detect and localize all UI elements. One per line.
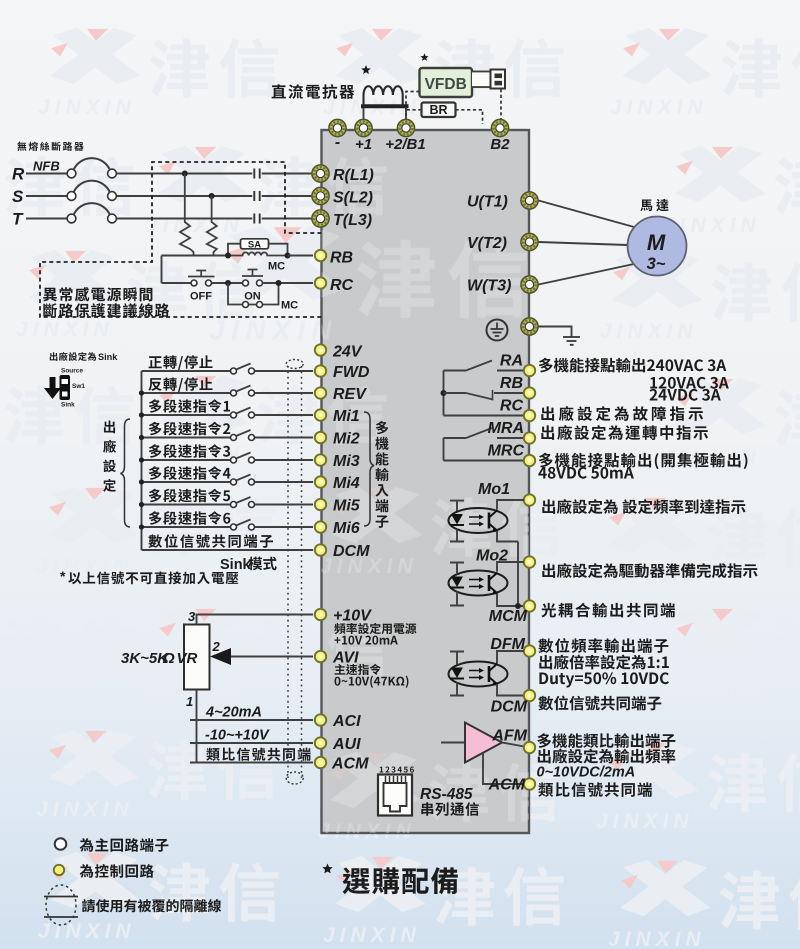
svg-text:T: T [12,210,24,229]
svg-text:R(L1): R(L1) [333,167,374,184]
svg-text:1: 1 [186,694,193,709]
svg-text:Mi3: Mi3 [333,453,360,470]
svg-text:+1: +1 [355,136,372,153]
svg-text:M: M [647,230,666,255]
svg-text:OFF: OFF [190,291,212,303]
svg-text:ACI: ACI [332,713,361,730]
svg-text:+2/B1: +2/B1 [385,136,425,153]
svg-text:REV: REV [333,386,367,403]
svg-text:3~: 3~ [647,255,666,273]
svg-text:MC: MC [281,300,298,312]
svg-text:Mi4: Mi4 [333,475,360,492]
svg-text:Mi5: Mi5 [333,498,361,515]
svg-text:S(L2): S(L2) [333,190,373,207]
svg-text:Sink: Sink [61,402,75,409]
svg-text:Sw1: Sw1 [72,383,85,390]
svg-text:V(T2): V(T2) [467,235,507,252]
svg-text:0~10VDC/2mA: 0~10VDC/2mA [537,765,636,781]
svg-text:AVI: AVI [332,650,359,667]
svg-text:DCM: DCM [491,699,528,716]
svg-text:-10~+10V: -10~+10V [205,728,270,744]
svg-text:Sink: Sink [220,557,252,573]
svg-text:Mo1: Mo1 [478,481,510,498]
svg-text:RA: RA [500,353,523,370]
svg-text:AFM: AFM [491,728,527,745]
svg-text:U(T1): U(T1) [467,194,508,211]
svg-text:RC: RC [500,398,524,415]
svg-text:Mi1: Mi1 [333,408,360,425]
svg-text:Mi2: Mi2 [333,431,360,448]
svg-text:T(L3): T(L3) [333,212,372,229]
svg-text:S: S [12,187,24,206]
svg-text:RS-485: RS-485 [420,786,473,803]
svg-text:Ω: Ω [162,650,175,667]
svg-text:ACM: ACM [331,756,369,773]
svg-text:Mi6: Mi6 [333,520,360,537]
svg-text:SA: SA [248,239,261,250]
svg-text:3: 3 [188,609,196,624]
svg-text:DCM: DCM [333,543,370,560]
svg-text:B2: B2 [490,136,510,153]
svg-text:RB: RB [330,250,353,267]
svg-text:RB: RB [500,375,523,392]
svg-text:MRA: MRA [488,420,524,437]
svg-text:-: - [335,134,340,151]
svg-text:MCM: MCM [489,608,528,625]
svg-text:4~20mA: 4~20mA [205,705,262,721]
svg-text:MRC: MRC [488,443,525,460]
svg-text:VR: VR [177,650,198,667]
svg-text:+10V: +10V [333,608,372,625]
svg-text:24V: 24V [332,344,363,361]
svg-text:W(T3): W(T3) [467,278,511,295]
svg-text:MC: MC [268,261,285,273]
svg-text:RC: RC [330,277,354,294]
svg-text:2: 2 [212,639,221,654]
svg-text:BR: BR [429,103,447,117]
svg-text:*: * [60,568,66,584]
svg-text:NFB: NFB [33,159,60,174]
svg-text:FWD: FWD [333,364,370,381]
svg-text:Source: Source [61,368,83,375]
svg-text:ON: ON [244,291,261,303]
svg-text:VFDB: VFDB [425,76,467,93]
svg-text:R: R [12,165,25,184]
svg-text:AUI: AUI [332,736,361,753]
svg-text:ACM: ACM [488,777,526,794]
svg-text:Sink: Sink [98,352,118,362]
